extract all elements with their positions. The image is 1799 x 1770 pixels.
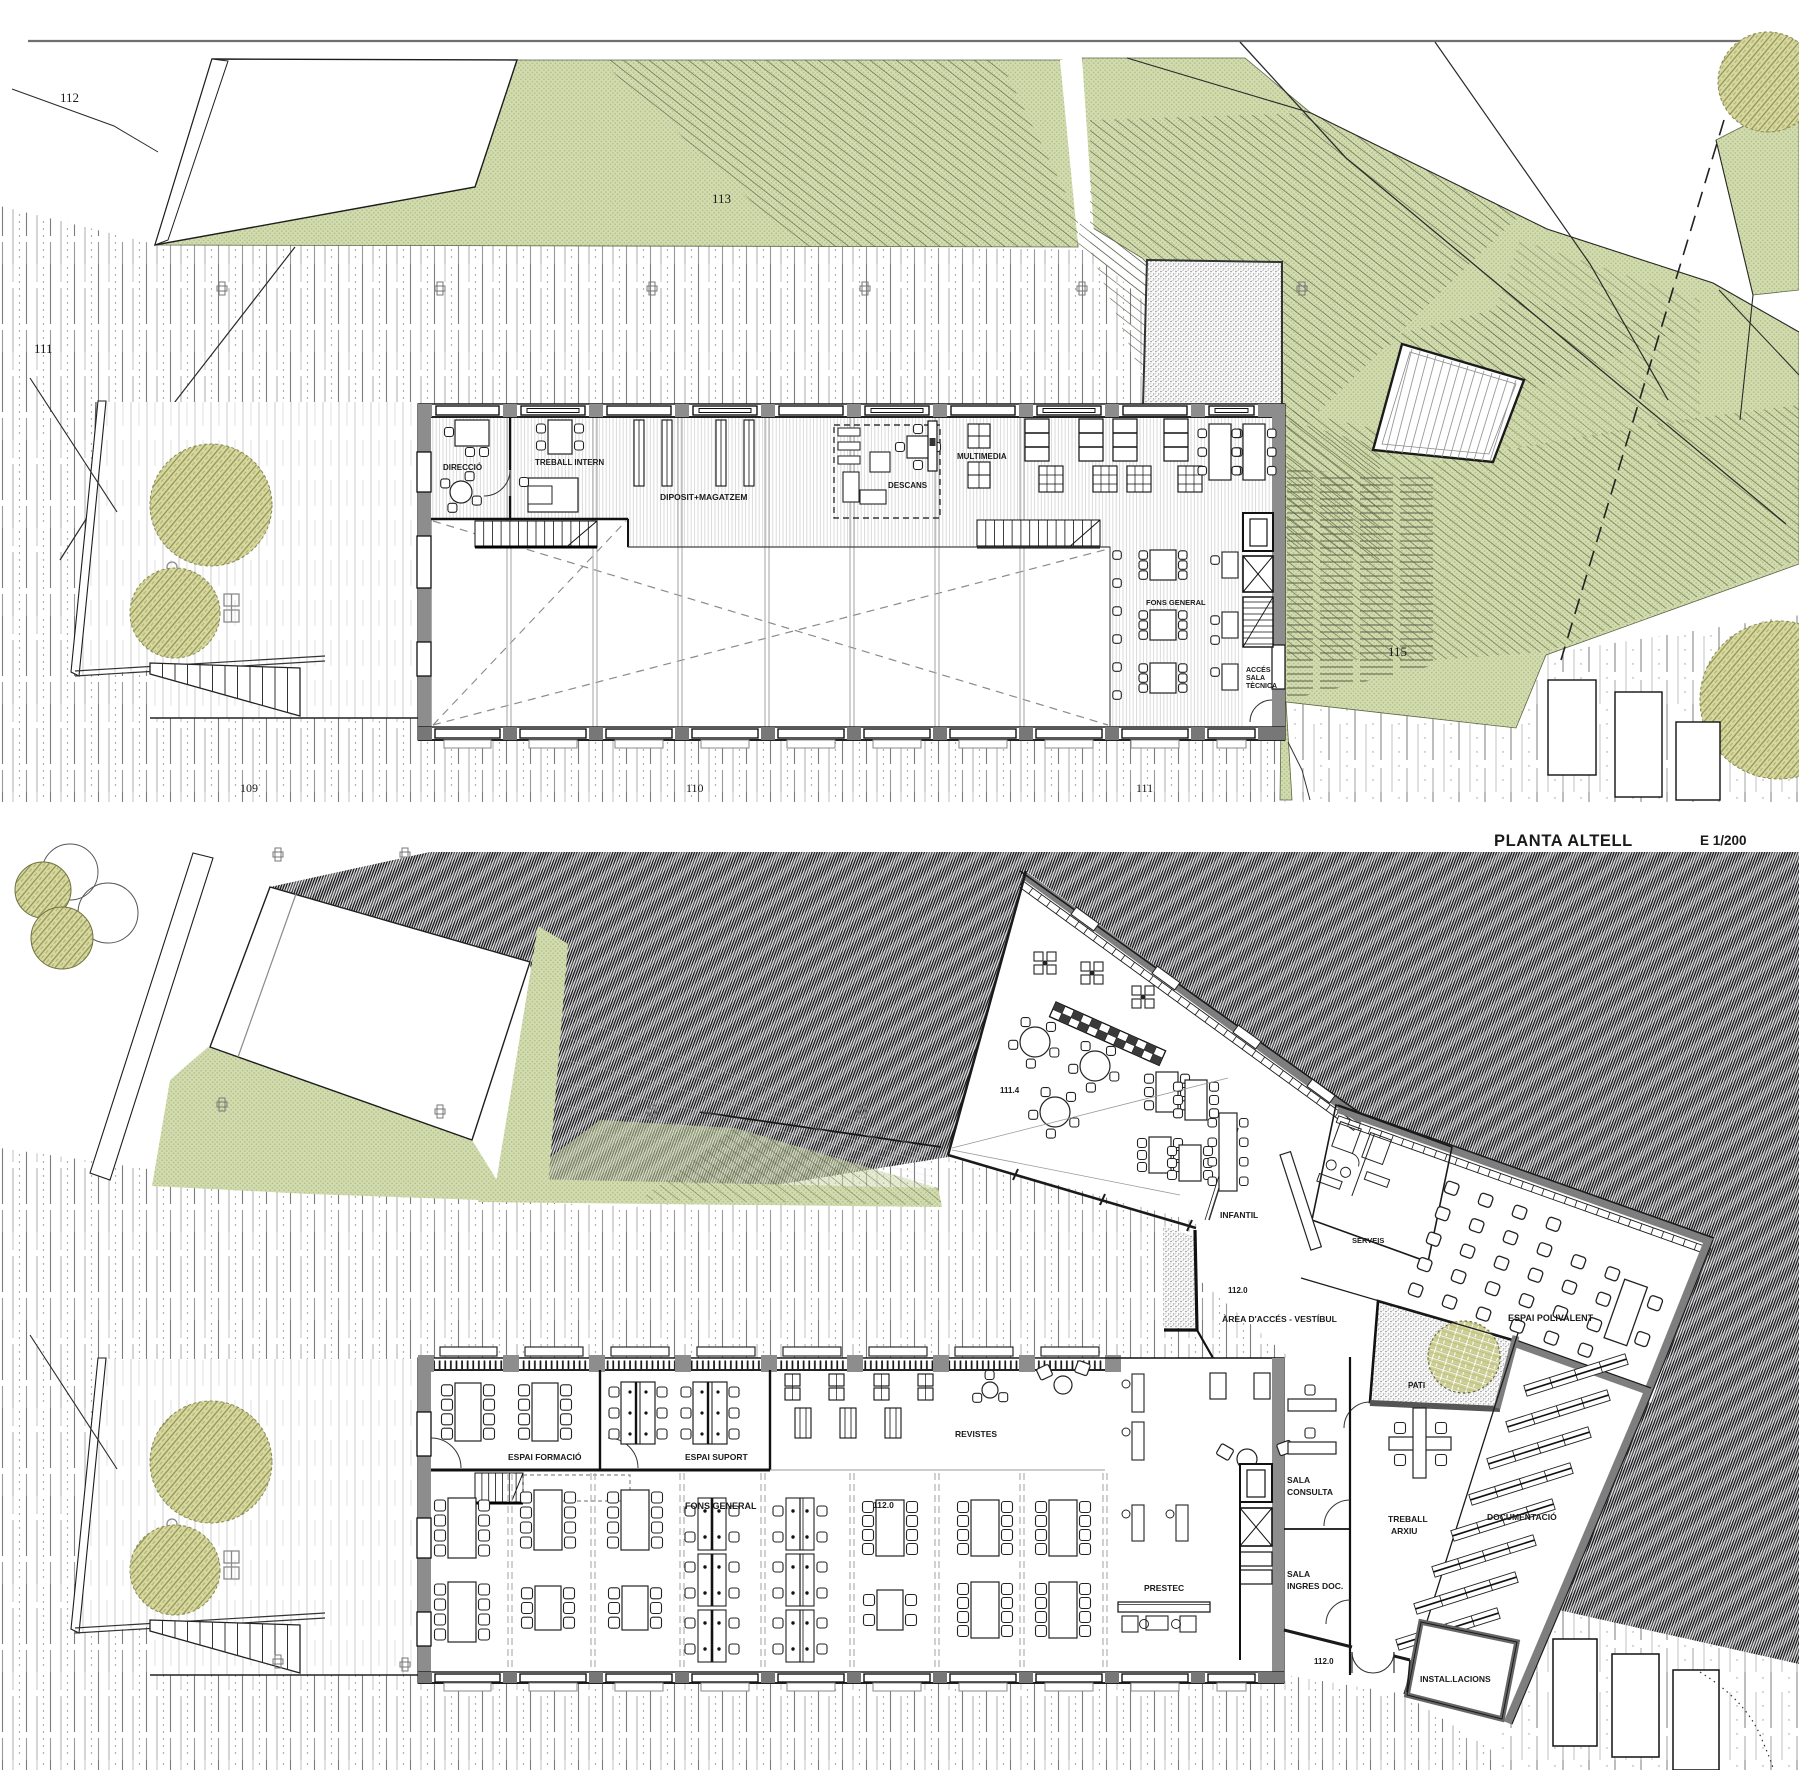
svg-text:115: 115 (1388, 644, 1407, 659)
svg-text:PATI: PATI (1408, 1381, 1425, 1390)
svg-text:112.0: 112.0 (1314, 1657, 1334, 1666)
svg-text:DIRECCIÓ: DIRECCIÓ (443, 463, 482, 472)
svg-text:TÈCNICA: TÈCNICA (1246, 681, 1277, 690)
svg-text:FONS GENERAL: FONS GENERAL (685, 1501, 757, 1511)
svg-text:110: 110 (686, 781, 704, 795)
svg-text:SERVEIS: SERVEIS (1352, 1236, 1384, 1245)
svg-text:INFANTIL: INFANTIL (1220, 1210, 1258, 1220)
svg-text:SALA: SALA (1287, 1475, 1310, 1485)
svg-text:111: 111 (1136, 781, 1153, 795)
svg-text:INSTAL.LACIONS: INSTAL.LACIONS (1420, 1674, 1491, 1684)
svg-text:ACCÉS: ACCÉS (1246, 665, 1271, 674)
svg-text:PRESTEC: PRESTEC (1144, 1583, 1184, 1593)
svg-text:TREBALL: TREBALL (1388, 1514, 1428, 1524)
svg-text:SALA: SALA (1246, 675, 1265, 682)
svg-text:MULTIMEDIA: MULTIMEDIA (957, 452, 1007, 461)
svg-text:DESCANS: DESCANS (888, 481, 928, 490)
svg-text:DIPOSIT+MAGATZEM: DIPOSIT+MAGATZEM (660, 492, 747, 502)
svg-text:111: 111 (34, 341, 53, 356)
svg-text:ARXIU: ARXIU (1391, 1526, 1417, 1536)
svg-text:PLANTA ALTELL: PLANTA ALTELL (1494, 832, 1633, 850)
svg-text:112: 112 (60, 90, 79, 105)
svg-text:111.4: 111.4 (1000, 1086, 1020, 1095)
svg-text:109: 109 (240, 781, 258, 795)
svg-text:DOCUMENTACIÓ: DOCUMENTACIÓ (1487, 1511, 1557, 1522)
svg-text:CONSULTA: CONSULTA (1287, 1487, 1333, 1497)
svg-text:ESPAI POLIVALENT: ESPAI POLIVALENT (1508, 1313, 1594, 1323)
svg-text:ESPAI SUPORT: ESPAI SUPORT (685, 1452, 748, 1462)
svg-text:113: 113 (712, 191, 731, 206)
svg-text:112.0: 112.0 (873, 1500, 894, 1510)
svg-text:E 1/200: E 1/200 (1700, 833, 1747, 848)
svg-text:112.0: 112.0 (1228, 1286, 1248, 1295)
svg-text:TREBALL INTERN: TREBALL INTERN (535, 458, 604, 467)
svg-text:FONS GENERAL: FONS GENERAL (1146, 598, 1206, 607)
svg-text:INGRES DOC.: INGRES DOC. (1287, 1581, 1343, 1591)
svg-text:SALA: SALA (1287, 1569, 1310, 1579)
svg-text:ÀREA D'ACCÉS - VESTÍBUL: ÀREA D'ACCÉS - VESTÍBUL (1222, 1314, 1337, 1324)
svg-text:ESPAI FORMACIÓ: ESPAI FORMACIÓ (508, 1451, 582, 1462)
svg-text:REVISTES: REVISTES (955, 1429, 997, 1439)
